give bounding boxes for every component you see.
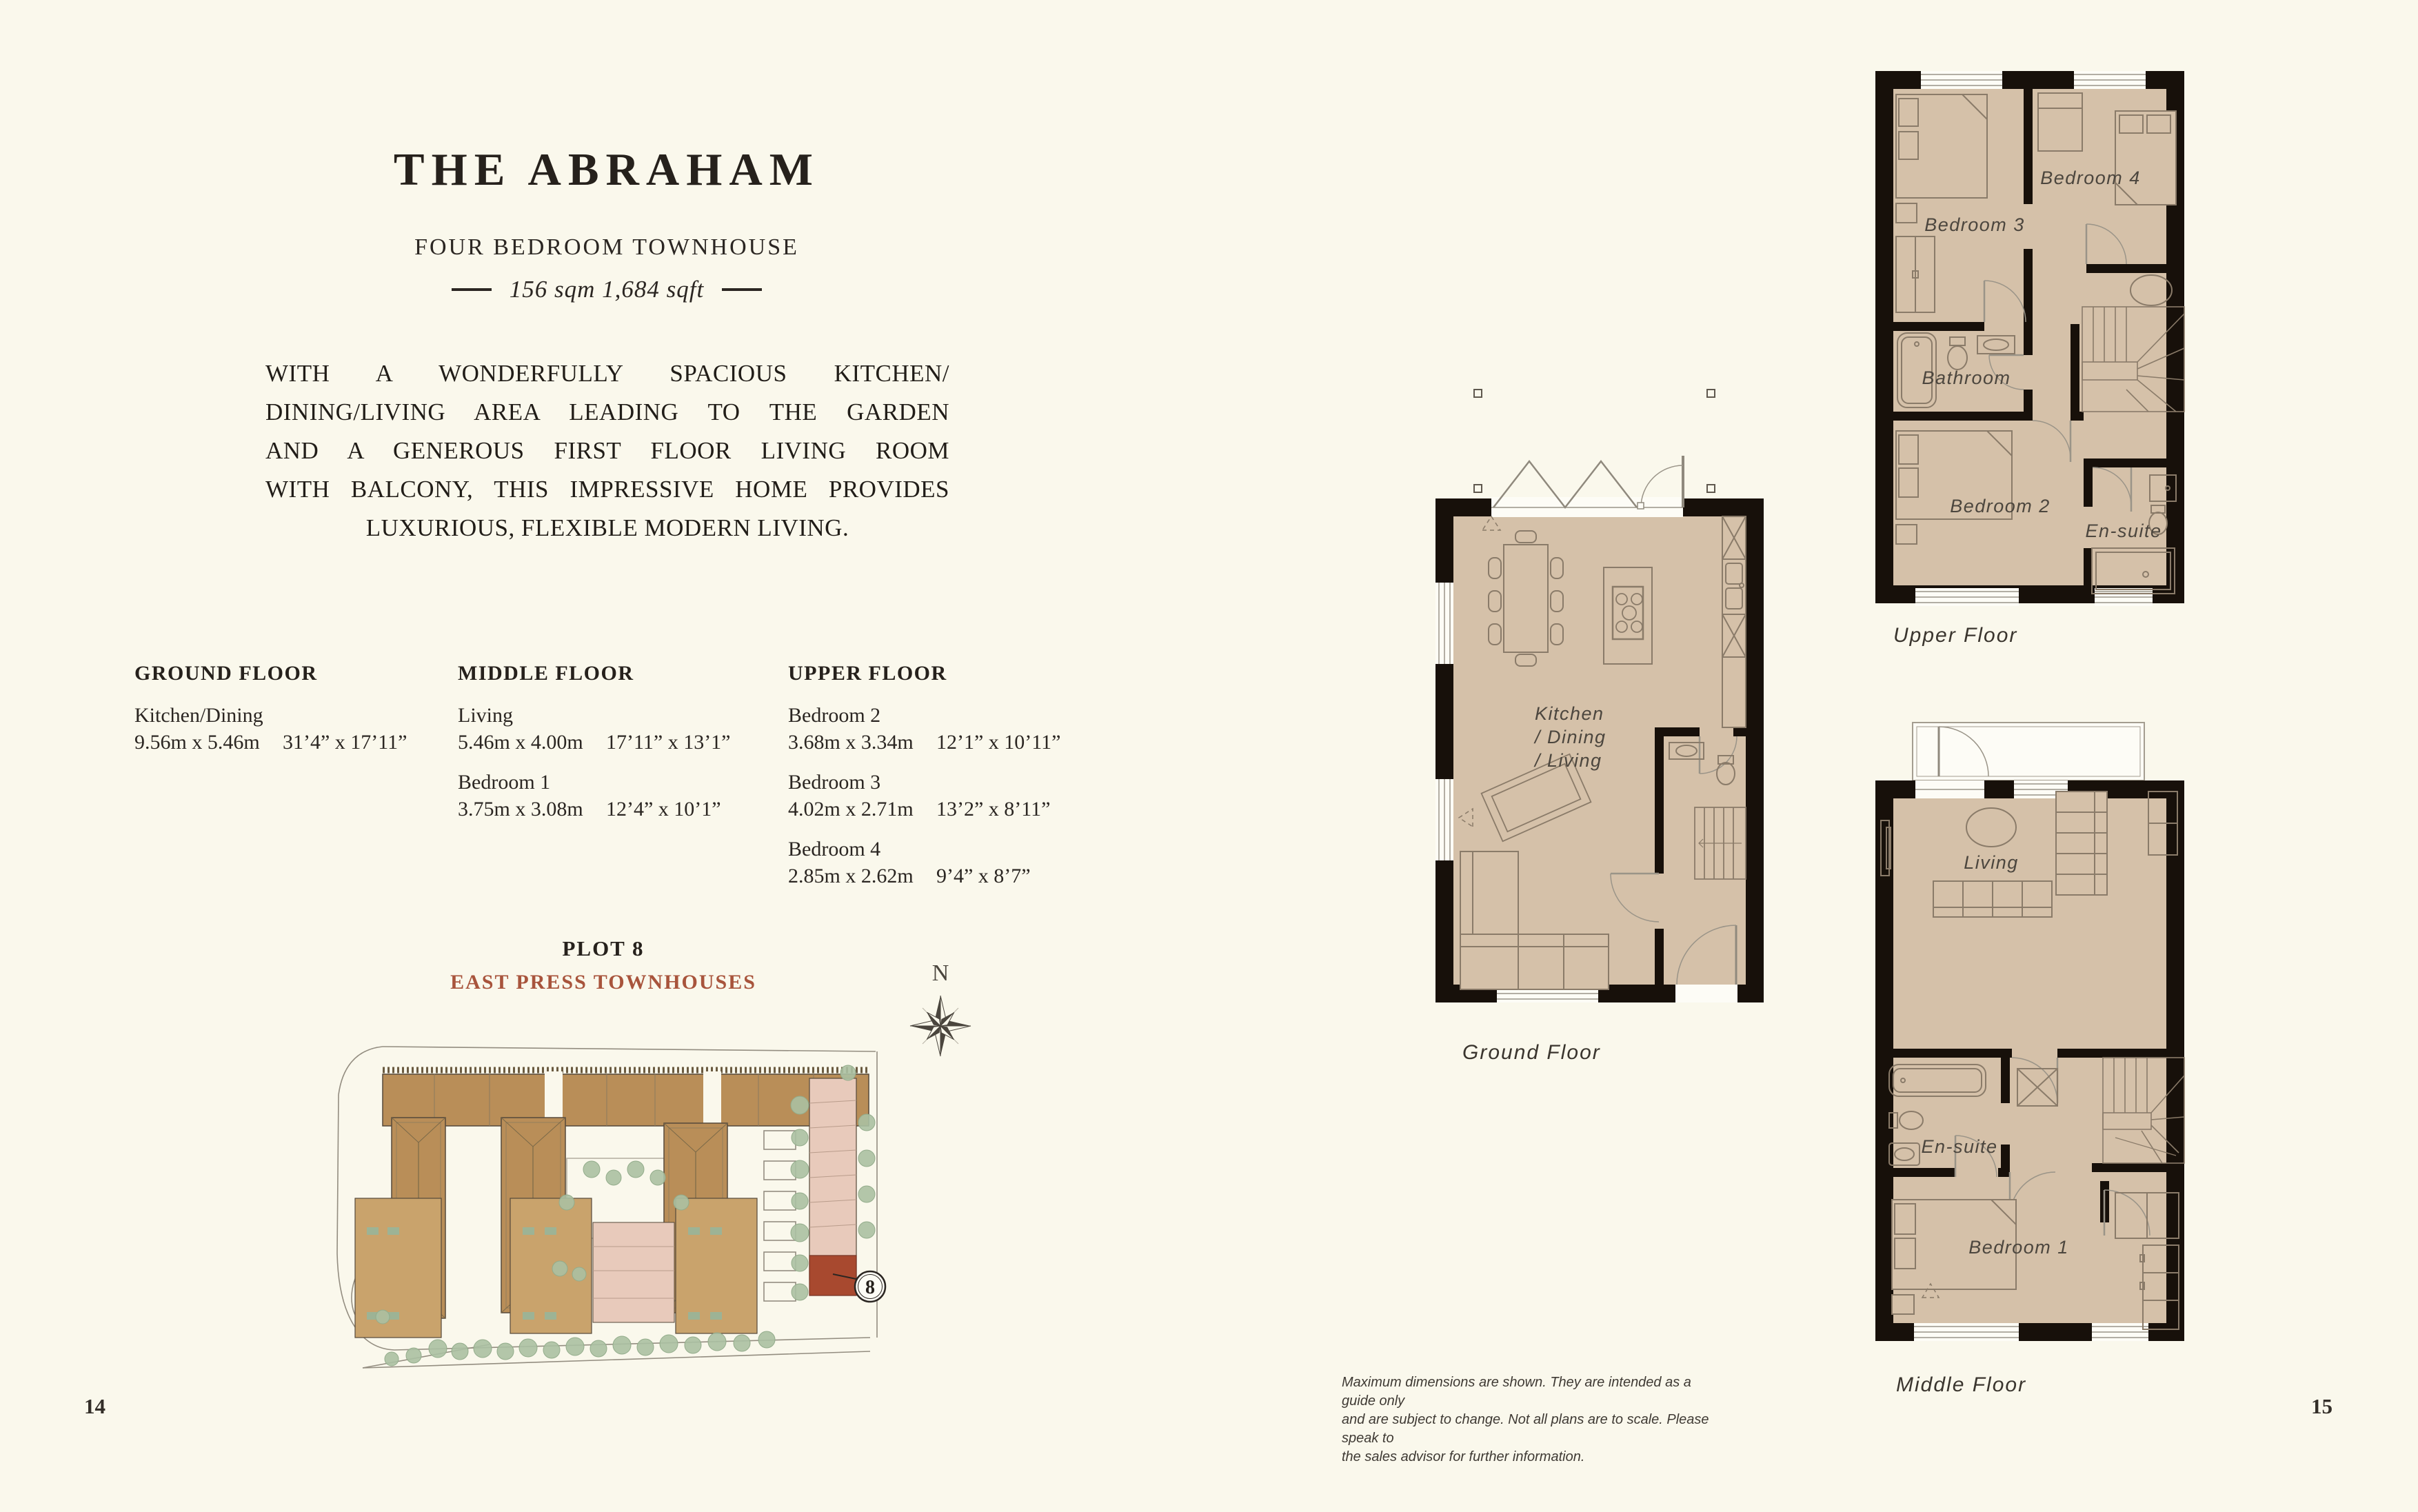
compass-rose: N (909, 957, 972, 1060)
spec-room-dimensions: 3.75m x 3.08m12’4” x 10’1” (458, 796, 775, 823)
spec-imperial: 13’2” x 8’11” (936, 798, 1051, 820)
spec-room-name: Kitchen/Dining (134, 702, 452, 729)
description-line: AND A GENEROUS FIRST FLOOR LIVING ROOM (265, 432, 949, 470)
spec-room-name: Bedroom 1 (458, 769, 775, 796)
spec-imperial: 17’11” x 13’1” (606, 731, 731, 754)
spec-room-name: Bedroom 2 (788, 702, 1105, 729)
description-line: WITH BALCONY, THIS IMPRESSIVE HOME PROVI… (265, 470, 949, 509)
site-plan: 8 (317, 1026, 900, 1379)
description-line: DINING/LIVING AREA LEADING TO THE GARDEN (265, 393, 949, 432)
spec-room-dimensions: 4.02m x 2.71m13’2” x 8’11” (788, 796, 1105, 823)
spec-column-ground-floor: GROUND FLOOR Kitchen/Dining 9.56m x 5.46… (134, 662, 452, 769)
left-page-number: 14 (84, 1394, 105, 1419)
spec-heading: UPPER FLOOR (788, 662, 1105, 685)
area-text: 156 sqm 1,684 sqft (510, 276, 704, 303)
bathroom-label: Bathroom (1922, 367, 2011, 388)
living-label: Living (1964, 852, 2019, 873)
compass-star-icon (910, 996, 971, 1056)
page-title: THE ABRAHAM (228, 143, 986, 196)
development-name: EAST PRESS TOWNHOUSES (296, 971, 910, 994)
description-paragraph: WITH A WONDERFULLY SPACIOUS KITCHEN/ DIN… (265, 354, 949, 547)
living-sofa-long (1933, 881, 2052, 917)
spec-room-dimensions: 9.56m x 5.46m31’4” x 17’11” (134, 729, 452, 756)
spec-metric: 9.56m x 5.46m (134, 729, 283, 756)
bedroom4-bed (2115, 111, 2176, 205)
right-page-number: 15 (2311, 1394, 2333, 1419)
living-sofa-vertical (2056, 792, 2107, 895)
spec-column-middle-floor: MIDDLE FLOOR Living 5.46m x 4.00m17’11” … (458, 662, 775, 836)
ground-floor-plan: Kitchen / Dining / Living (1433, 384, 1766, 1015)
page-subtitle: FOUR BEDROOM TOWNHOUSE (228, 234, 986, 261)
spec-entry: Living 5.46m x 4.00m17’11” x 13’1” (458, 702, 775, 756)
upper-floor-caption: Upper Floor (1893, 624, 2017, 647)
plot-heading-block: PLOT 8 EAST PRESS TOWNHOUSES (296, 936, 910, 994)
middle-floor-plan: Living En-suite Bedroom 1 (1873, 717, 2187, 1362)
bedroom3-label: Bedroom 3 (1924, 214, 2025, 235)
spec-room-dimensions: 3.68m x 3.34m12’1” x 10’11” (788, 729, 1105, 756)
area-row: 156 sqm 1,684 sqft (228, 276, 986, 303)
spec-room-name: Living (458, 702, 775, 729)
spec-entry: Kitchen/Dining 9.56m x 5.46m31’4” x 17’1… (134, 702, 452, 756)
kitchen-dining-living-label: Kitchen / Dining / Living (1533, 703, 1606, 771)
svg-text:/ Dining: / Dining (1533, 727, 1606, 747)
spec-entry: Bedroom 4 2.85m x 2.62m9’4” x 8’7” (788, 836, 1105, 889)
plot-number: 8 (865, 1277, 875, 1298)
svg-text:/ Living: / Living (1533, 750, 1602, 771)
spec-heading: GROUND FLOOR (134, 662, 452, 685)
spec-column-upper-floor: UPPER FLOOR Bedroom 2 3.68m x 3.34m12’1”… (788, 662, 1105, 903)
spec-imperial: 31’4” x 17’11” (283, 731, 407, 754)
disclaimer-line: the sales advisor for further informatio… (1342, 1448, 1728, 1466)
spec-room-name: Bedroom 3 (788, 769, 1105, 796)
description-line: WITH A WONDERFULLY SPACIOUS KITCHEN/ (265, 354, 949, 393)
upper-ensuite-label: En-suite (2085, 521, 2162, 541)
disclaimer-line: Maximum dimensions are shown. They are i… (1342, 1373, 1728, 1411)
spec-room-dimensions: 2.85m x 2.62m9’4” x 8’7” (788, 863, 1105, 889)
spec-metric: 2.85m x 2.62m (788, 863, 936, 889)
bedroom2-label: Bedroom 2 (1950, 496, 2051, 516)
description-line: LUXURIOUS, FLEXIBLE MODERN LIVING. (265, 509, 949, 547)
area-dash-left (452, 288, 492, 291)
garden-posts (1474, 390, 1715, 492)
spec-entry: Bedroom 3 4.02m x 2.71m13’2” x 8’11” (788, 769, 1105, 823)
spec-metric: 5.46m x 4.00m (458, 729, 606, 756)
spec-room-name: Bedroom 4 (788, 836, 1105, 863)
bedroom1-label: Bedroom 1 (1968, 1237, 2069, 1258)
upper-floor-plan: Bedroom 3 Bedroom 4 Bathroom Bedroom 2 E… (1873, 65, 2187, 612)
plot-label: PLOT 8 (296, 936, 910, 961)
spec-room-dimensions: 5.46m x 4.00m17’11” x 13’1” (458, 729, 775, 756)
disclaimer: Maximum dimensions are shown. They are i… (1342, 1373, 1728, 1466)
site-highlighted-plot (809, 1256, 856, 1296)
spec-imperial: 12’4” x 10’1” (606, 798, 721, 820)
spec-heading: MIDDLE FLOOR (458, 662, 775, 685)
ground-floor-caption: Ground Floor (1462, 1041, 1601, 1065)
spec-metric: 4.02m x 2.71m (788, 796, 936, 823)
balcony (1913, 723, 2144, 780)
spec-imperial: 12’1” x 10’11” (936, 731, 1061, 754)
compass-north-label: N (932, 960, 949, 986)
spec-metric: 3.75m x 3.08m (458, 796, 606, 823)
spec-entry: Bedroom 1 3.75m x 3.08m12’4” x 10’1” (458, 769, 775, 823)
spec-metric: 3.68m x 3.34m (788, 729, 936, 756)
svg-text:Kitchen: Kitchen (1535, 703, 1604, 724)
area-dash-right (722, 288, 762, 291)
bedroom4-label: Bedroom 4 (2040, 168, 2141, 188)
bifold-doors (1491, 456, 1683, 517)
middle-ensuite-label: En-suite (1921, 1136, 1997, 1157)
middle-floor-caption: Middle Floor (1896, 1373, 2026, 1397)
brochure-spread: THE ABRAHAM FOUR BEDROOM TOWNHOUSE 156 s… (0, 0, 2418, 1512)
spec-entry: Bedroom 2 3.68m x 3.34m12’1” x 10’11” (788, 702, 1105, 756)
disclaimer-line: and are subject to change. Not all plans… (1342, 1411, 1728, 1448)
spec-imperial: 9’4” x 8’7” (936, 865, 1031, 887)
title-block: THE ABRAHAM FOUR BEDROOM TOWNHOUSE 156 s… (228, 143, 986, 303)
